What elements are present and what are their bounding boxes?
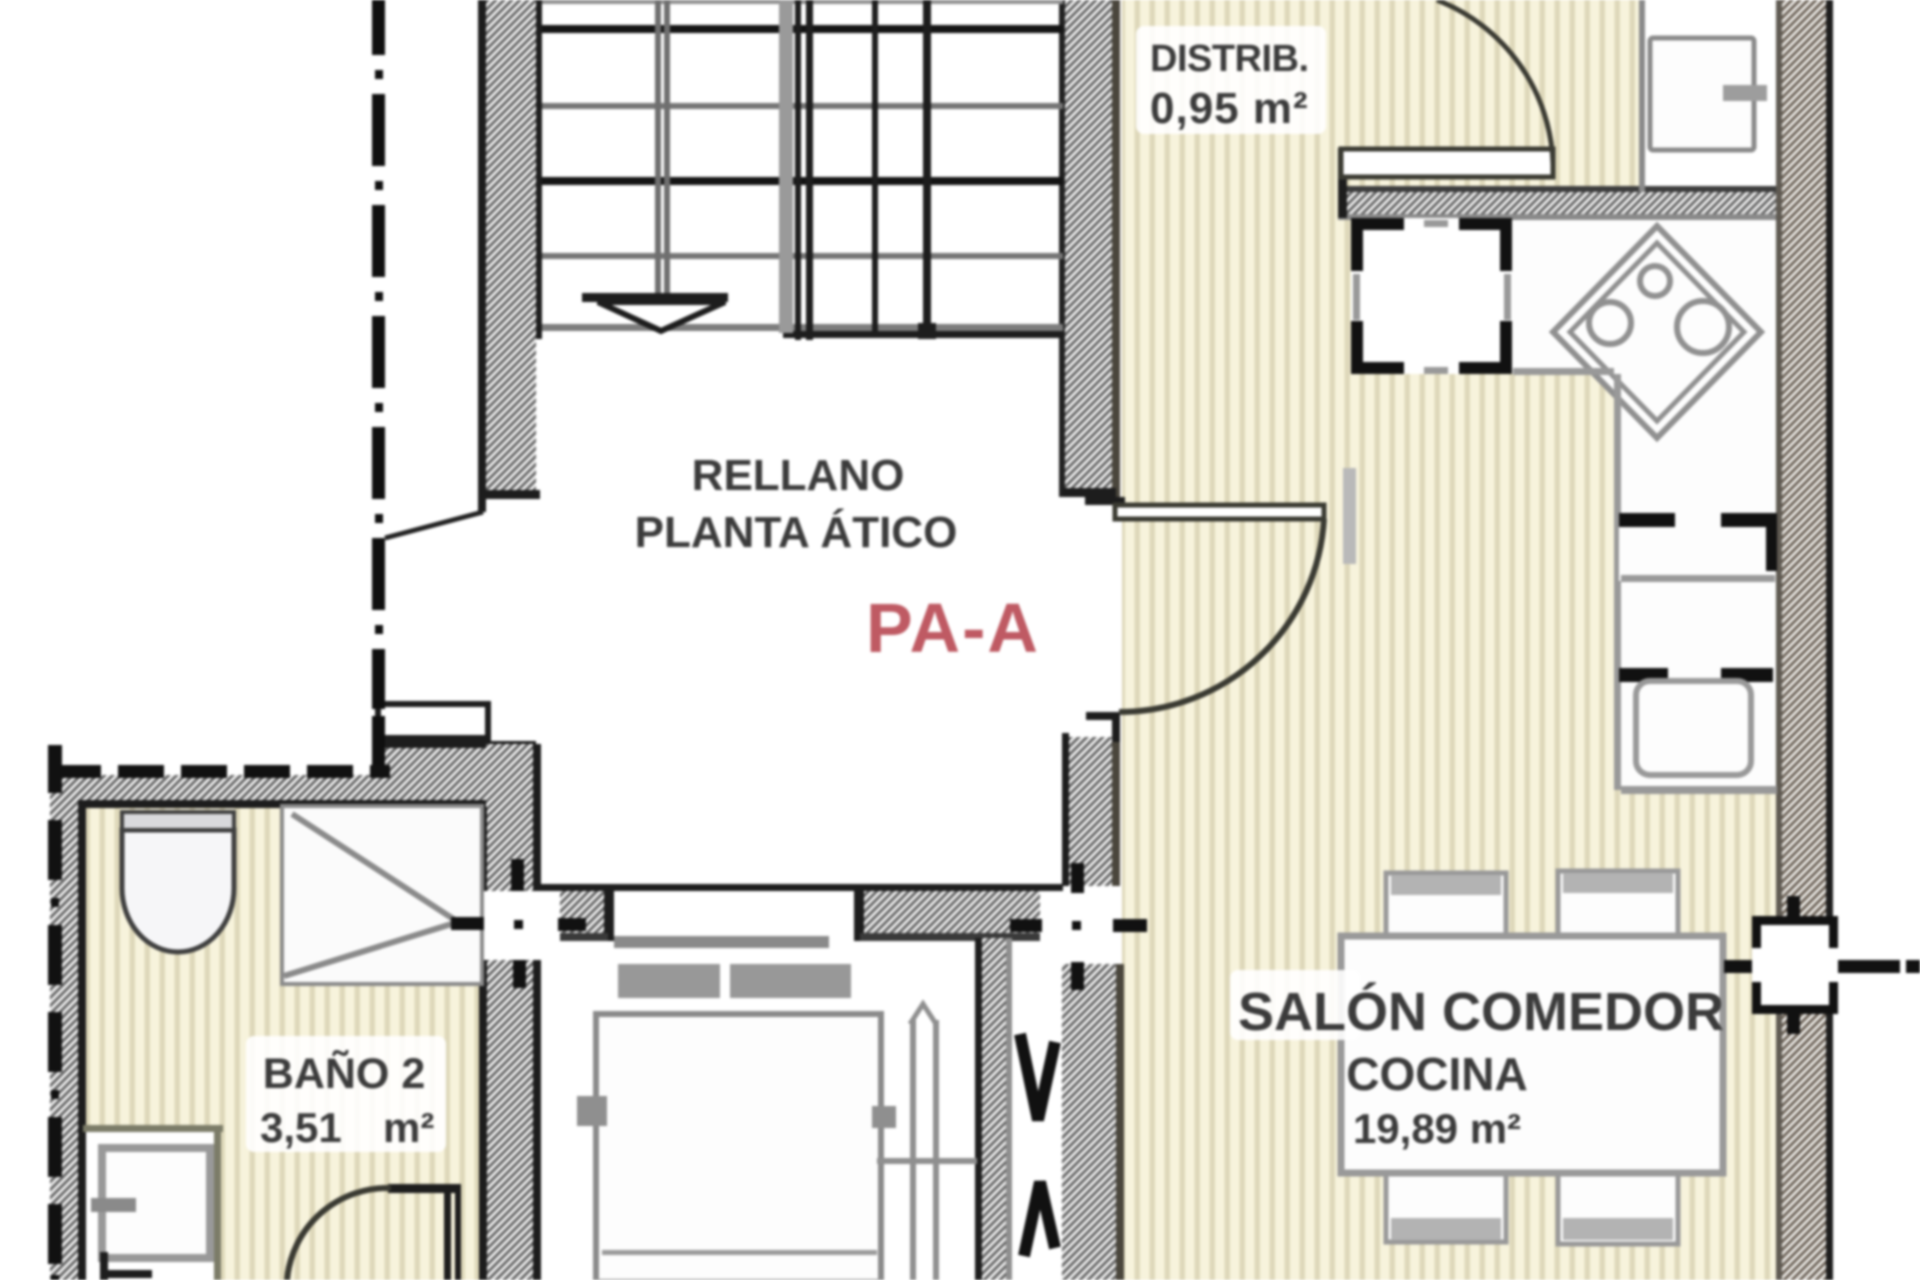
svg-text:3,51: 3,51 bbox=[260, 1104, 342, 1151]
svg-text:m²: m² bbox=[383, 1104, 434, 1151]
svg-text:0,95 m²: 0,95 m² bbox=[1150, 84, 1309, 133]
svg-text:PLANTA ÁTICO: PLANTA ÁTICO bbox=[635, 507, 958, 557]
svg-text:19,89 m²: 19,89 m² bbox=[1353, 1105, 1521, 1152]
svg-text:DISTRIB.: DISTRIB. bbox=[1150, 38, 1309, 80]
svg-text:RELLANO: RELLANO bbox=[692, 451, 905, 500]
svg-text:PA-A: PA-A bbox=[866, 589, 1040, 667]
svg-text:BAÑO 2: BAÑO 2 bbox=[263, 1050, 425, 1098]
svg-text:COCINA: COCINA bbox=[1346, 1048, 1527, 1100]
svg-text:SALÓN COMEDOR: SALÓN COMEDOR bbox=[1238, 982, 1724, 1042]
